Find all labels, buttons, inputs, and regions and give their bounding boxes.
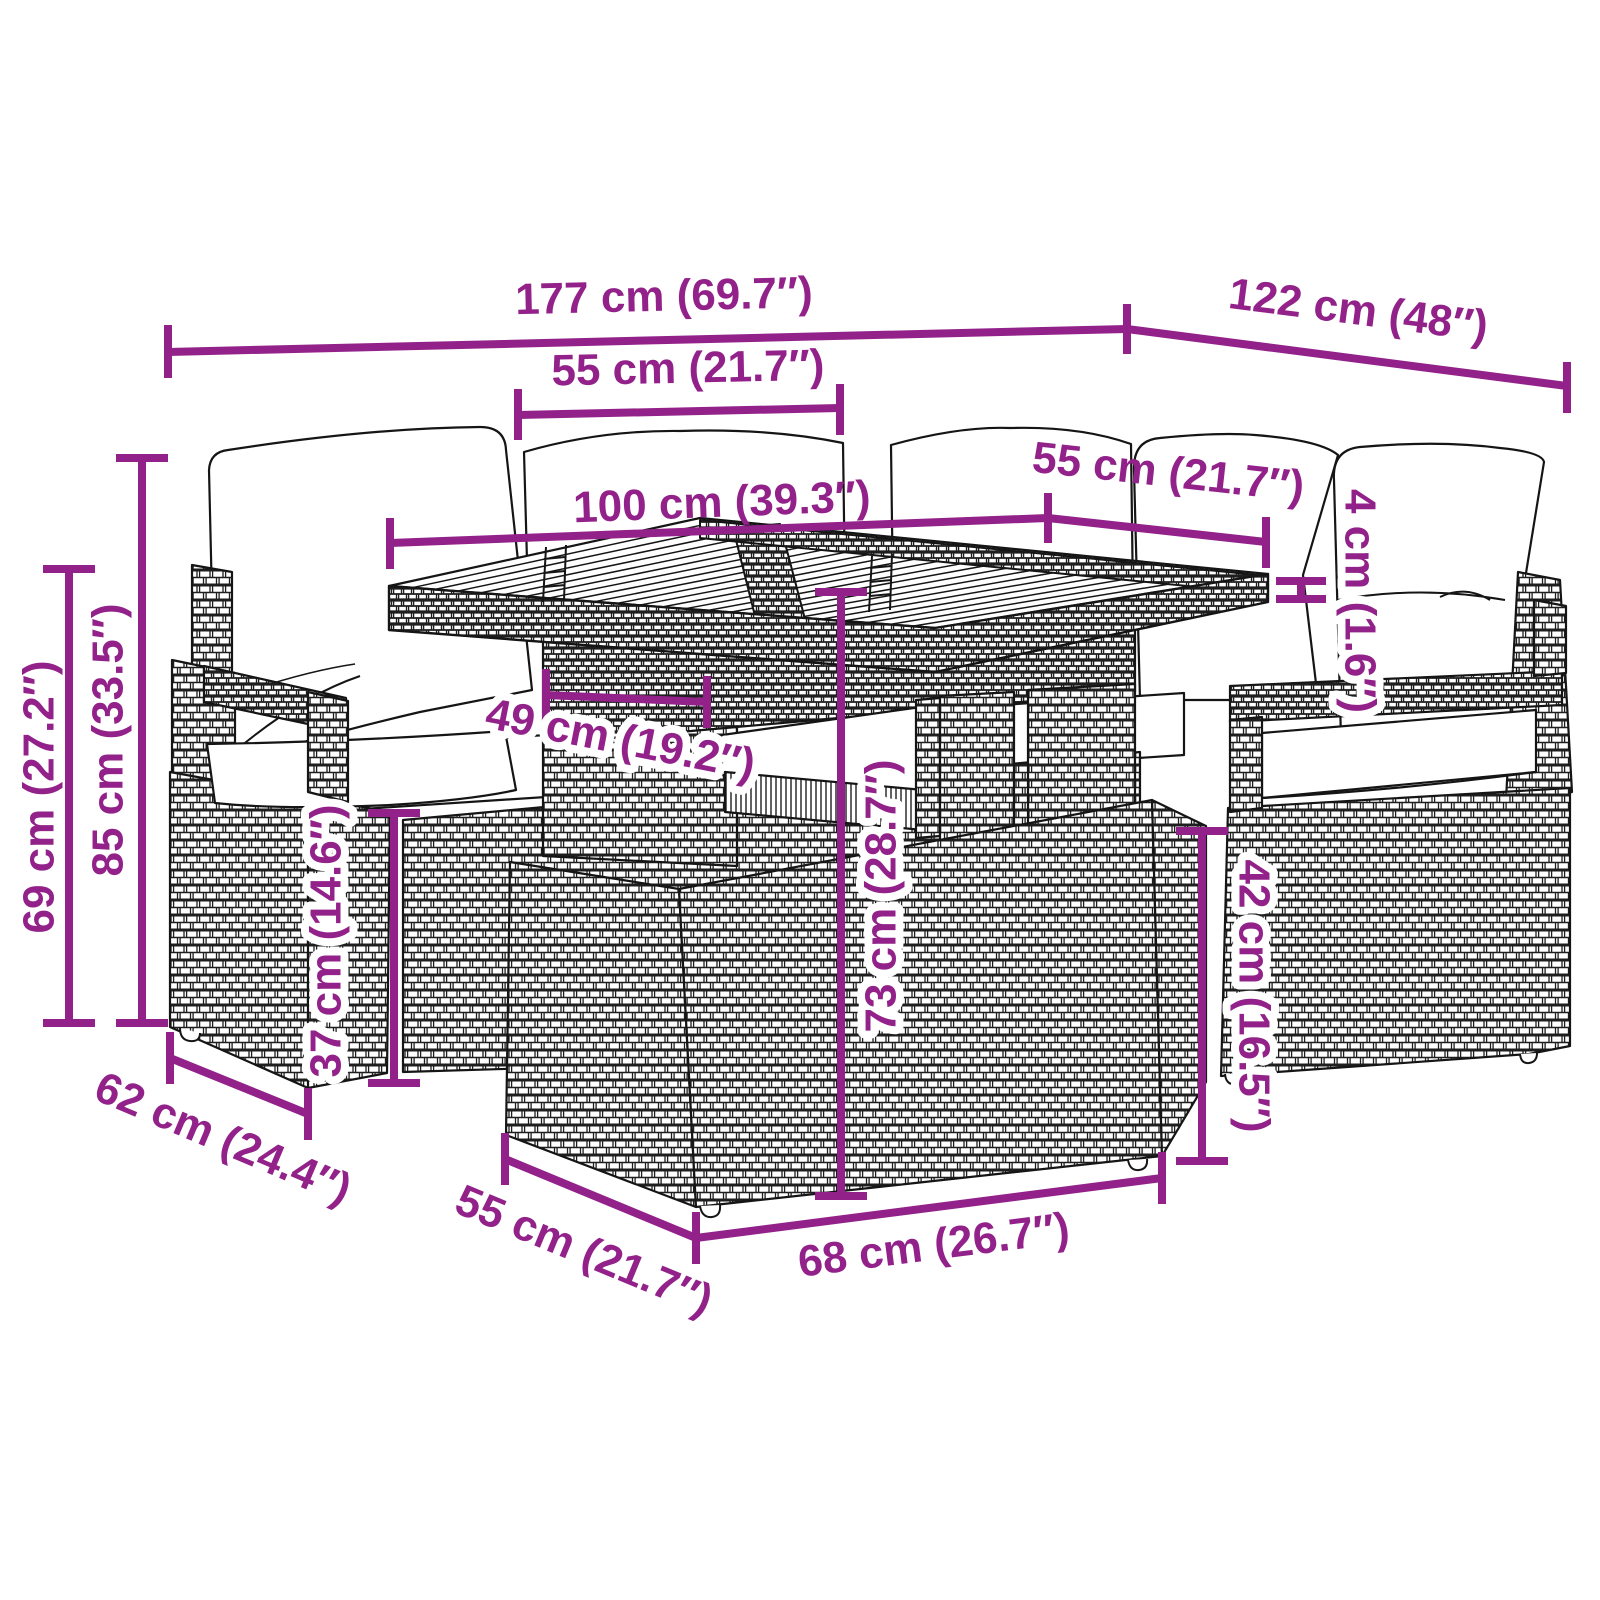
svg-text:177 cm (69.7″): 177 cm (69.7″): [515, 268, 814, 324]
svg-text:73 cm (28.7″): 73 cm (28.7″): [857, 759, 906, 1032]
svg-text:85 cm (33.5″): 85 cm (33.5″): [84, 603, 133, 876]
svg-text:69 cm (27.2″): 69 cm (27.2″): [15, 660, 64, 933]
svg-text:37 cm (14.6″): 37 cm (14.6″): [302, 804, 351, 1077]
svg-text:55 cm (21.7″): 55 cm (21.7″): [551, 341, 825, 396]
svg-text:4 cm (1.6″): 4 cm (1.6″): [1335, 489, 1384, 713]
svg-text:42 cm (16.5″): 42 cm (16.5″): [1229, 859, 1278, 1132]
